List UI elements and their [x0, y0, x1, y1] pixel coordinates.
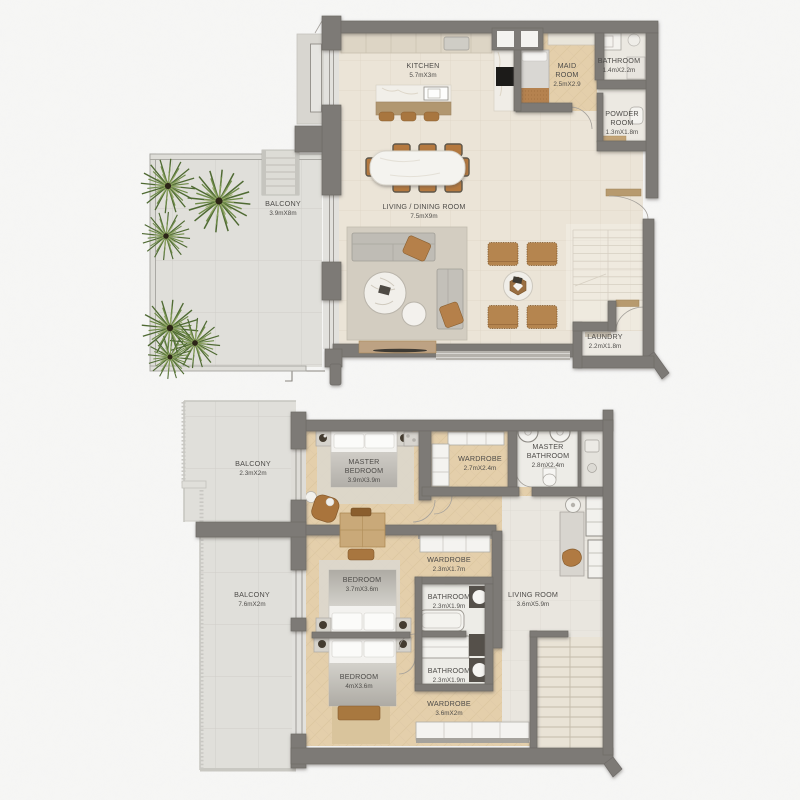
- svg-text:2.3mX1.9m: 2.3mX1.9m: [433, 603, 466, 610]
- svg-text:3.9mX3.9m: 3.9mX3.9m: [348, 477, 381, 484]
- svg-text:2.7mX2.4m: 2.7mX2.4m: [464, 465, 497, 472]
- svg-text:MAID: MAID: [558, 61, 577, 70]
- svg-text:BALCONY: BALCONY: [265, 199, 301, 208]
- svg-text:7.5mX9m: 7.5mX9m: [410, 213, 437, 220]
- svg-text:BATHROOM: BATHROOM: [428, 592, 471, 601]
- svg-text:BALCONY: BALCONY: [235, 459, 271, 468]
- svg-text:5.7mX3m: 5.7mX3m: [409, 72, 436, 79]
- svg-text:BEDROOM: BEDROOM: [345, 466, 384, 475]
- svg-text:7.6mX2m: 7.6mX2m: [238, 601, 265, 608]
- svg-text:1.4mX2.2m: 1.4mX2.2m: [603, 67, 636, 74]
- svg-text:1.3mX1.8m: 1.3mX1.8m: [606, 129, 639, 136]
- svg-text:2.8mX2.4m: 2.8mX2.4m: [532, 462, 565, 469]
- svg-text:3.6mX5.9m: 3.6mX5.9m: [517, 601, 550, 608]
- svg-text:BEDROOM: BEDROOM: [340, 672, 379, 681]
- svg-text:2.5mX2.9: 2.5mX2.9: [553, 81, 581, 88]
- svg-text:3.6mX2m: 3.6mX2m: [435, 710, 462, 717]
- svg-text:BATHROOM: BATHROOM: [527, 451, 570, 460]
- svg-text:LIVING ROOM: LIVING ROOM: [508, 590, 558, 599]
- svg-text:BATHROOM: BATHROOM: [598, 56, 641, 65]
- svg-text:LAUNDRY: LAUNDRY: [587, 332, 623, 341]
- svg-text:KITCHEN: KITCHEN: [407, 61, 440, 70]
- svg-text:2.3mX1.7m: 2.3mX1.7m: [433, 566, 466, 573]
- svg-text:ROOM: ROOM: [555, 70, 578, 79]
- svg-text:LIVING / DINING ROOM: LIVING / DINING ROOM: [382, 202, 465, 211]
- svg-text:POWDER: POWDER: [605, 109, 639, 118]
- svg-text:WARDROBE: WARDROBE: [427, 699, 471, 708]
- svg-text:BATHROOM: BATHROOM: [428, 666, 471, 675]
- svg-text:2.2mX1.8m: 2.2mX1.8m: [589, 343, 622, 350]
- svg-text:3.7mX3.6m: 3.7mX3.6m: [346, 586, 379, 593]
- svg-text:ROOM: ROOM: [610, 118, 633, 127]
- svg-text:BALCONY: BALCONY: [234, 590, 270, 599]
- svg-text:MASTER: MASTER: [532, 442, 563, 451]
- svg-text:MASTER: MASTER: [348, 457, 379, 466]
- svg-text:4mX3.6m: 4mX3.6m: [345, 683, 372, 690]
- svg-text:BEDROOM: BEDROOM: [343, 575, 382, 584]
- svg-text:WARDROBE: WARDROBE: [458, 454, 502, 463]
- svg-text:WARDROBE: WARDROBE: [427, 555, 471, 564]
- svg-text:2.3mX1.9m: 2.3mX1.9m: [433, 677, 466, 684]
- svg-text:3.9mX8m: 3.9mX8m: [269, 210, 296, 217]
- svg-text:2.3mX2m: 2.3mX2m: [239, 470, 266, 477]
